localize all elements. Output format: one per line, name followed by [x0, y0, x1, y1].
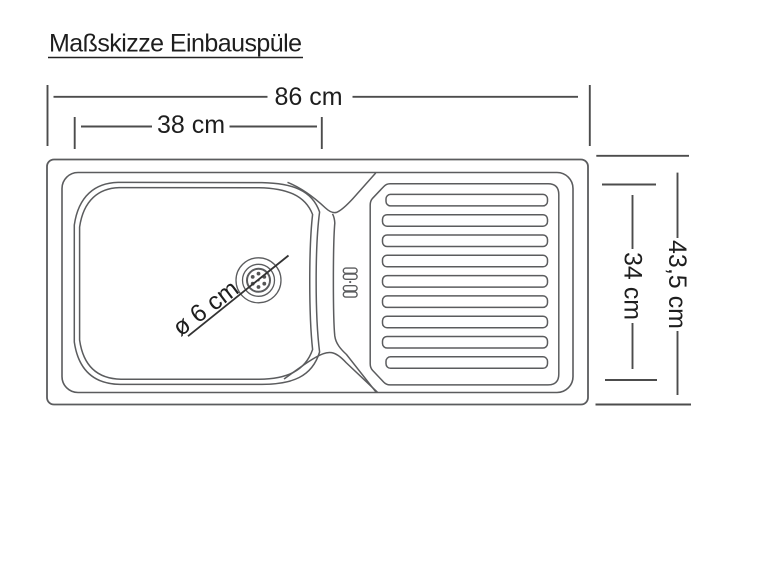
- svg-text:34 cm: 34 cm: [619, 252, 647, 320]
- svg-text:43,5 cm: 43,5 cm: [663, 240, 691, 329]
- svg-text:ø 6 cm: ø 6 cm: [168, 275, 244, 342]
- svg-text:Maßskizze Einbauspüle: Maßskizze Einbauspüle: [49, 30, 301, 58]
- svg-text:86 cm: 86 cm: [274, 83, 342, 111]
- svg-text:38 cm: 38 cm: [157, 111, 225, 139]
